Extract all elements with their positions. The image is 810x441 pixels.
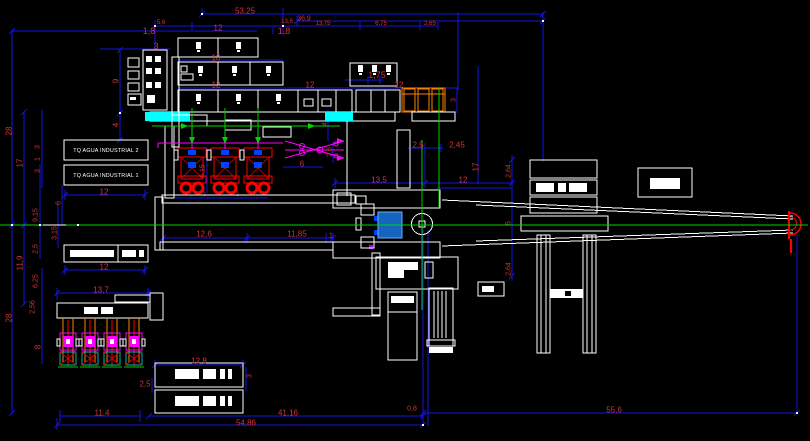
dimension-text: 2,6 <box>327 147 334 157</box>
dimension-text: 1 <box>35 157 42 161</box>
dimension-text: 2,5 <box>139 380 151 389</box>
pump-station <box>155 115 355 250</box>
dimension-text: 2,5 <box>412 141 424 150</box>
penstock-lines <box>442 200 793 246</box>
dimension-text: 4 <box>112 122 121 127</box>
bottom-service-buildings <box>155 363 243 413</box>
dimension-text: 12 <box>214 24 223 33</box>
dimension-text: 12 <box>100 188 109 197</box>
dimension-text: 12 <box>100 263 109 272</box>
dimension-text: 17 <box>472 162 481 171</box>
dimension-text: 13,6 <box>281 19 293 25</box>
dimension-text: 18 <box>212 54 221 63</box>
dimension-text: 6 <box>300 160 305 169</box>
pump-2 <box>207 148 239 193</box>
dimension-text: 12 <box>212 81 221 90</box>
dimension-text: 41,16 <box>278 409 299 418</box>
dimension-text: 2,45 <box>449 141 465 150</box>
concrete-stipple-slab <box>521 216 608 231</box>
transformer-4 <box>123 318 145 367</box>
dimension-text: 6 <box>56 201 63 205</box>
dimension-text: 13,75 <box>315 21 331 27</box>
dimension-text: 8 <box>34 344 43 349</box>
dimension-text: 2,64 <box>506 164 513 178</box>
dimension-text: 36,9 <box>297 16 311 23</box>
dimension-text: 6,15 <box>200 164 207 178</box>
dimension-text: 11,4 <box>95 409 111 418</box>
dimension-text: 3 <box>451 98 458 102</box>
dimension-text: 13,5 <box>371 176 387 185</box>
dimension-text: 3 <box>247 374 254 378</box>
dimension-text: 12 <box>459 176 468 185</box>
water-tanks: TQ AGUA INDUSTRIAL 2 TQ AGUA INDUSTRIAL … <box>64 140 148 262</box>
dimension-text: 53,25 <box>235 7 256 16</box>
dimension-text: 2,56 <box>30 300 37 314</box>
dimension-text: 55,6 <box>606 406 622 415</box>
dimension-text: 12 <box>395 81 404 90</box>
right-buildings <box>521 160 692 231</box>
tailrace-columns <box>537 235 596 353</box>
turbine-hall <box>333 190 504 360</box>
dimension-text: 3,15 <box>52 226 59 240</box>
tank2-label: TQ AGUA INDUSTRIAL 2 <box>73 148 139 154</box>
tank1-label: TQ AGUA INDUSTRIAL 1 <box>73 173 139 179</box>
dimension-text: 1,8 <box>278 26 291 36</box>
cad-viewport[interactable]: TQ AGUA INDUSTRIAL 2 TQ AGUA INDUSTRIAL … <box>0 0 810 441</box>
dimension-text: 12 <box>306 81 315 90</box>
intake-gate <box>789 211 801 253</box>
walkway-hatch <box>333 253 380 316</box>
dimension-text: 13,7 <box>93 286 109 295</box>
dimension-text: 17 <box>16 158 25 167</box>
dimension-text: 9 <box>112 78 121 83</box>
dimension-text: 2,65 <box>424 21 436 27</box>
dimension-text: 3 <box>153 41 158 51</box>
dimension-text: 28 <box>5 126 14 135</box>
dimension-text: 2,64 <box>506 262 513 276</box>
transformer-2 <box>79 318 101 367</box>
dimension-text: 11,85 <box>287 230 307 239</box>
dimension-text: 2,5 <box>33 244 40 254</box>
grip-dots <box>11 13 798 426</box>
transformer-3 <box>101 318 123 367</box>
dimension-text: 1,75 <box>368 70 386 80</box>
dimension-text: 1 <box>329 233 333 240</box>
fin-column <box>429 288 453 346</box>
dimension-text: 54,86 <box>236 419 257 428</box>
dimension-text: 6,25 <box>33 274 40 288</box>
pump-3 <box>240 148 272 193</box>
transformer-1 <box>57 318 79 367</box>
dimension-text: 5,6 <box>157 20 166 26</box>
dimension-text: 4 <box>322 122 329 126</box>
stair-ladder-center <box>397 130 410 188</box>
dimension-text: 1,8 <box>143 26 156 36</box>
cad-drawing-stage: TQ AGUA INDUSTRIAL 2 TQ AGUA INDUSTRIAL … <box>0 0 810 441</box>
dimension-text: 0,8 <box>407 406 417 413</box>
dimension-text: 3 <box>35 145 42 149</box>
transformer-yard <box>57 293 163 367</box>
dimension-text: 12,6 <box>196 230 212 239</box>
dimension-text: 3 <box>35 169 42 173</box>
dimension-text: 28 <box>5 313 14 322</box>
dimension-text: 11,9 <box>16 255 25 271</box>
dimension-text: 12,8 <box>191 357 207 366</box>
dimension-text: 9,15 <box>33 208 40 222</box>
dimension-text: 5 <box>506 221 513 225</box>
dimension-text: 6,75 <box>375 21 387 27</box>
